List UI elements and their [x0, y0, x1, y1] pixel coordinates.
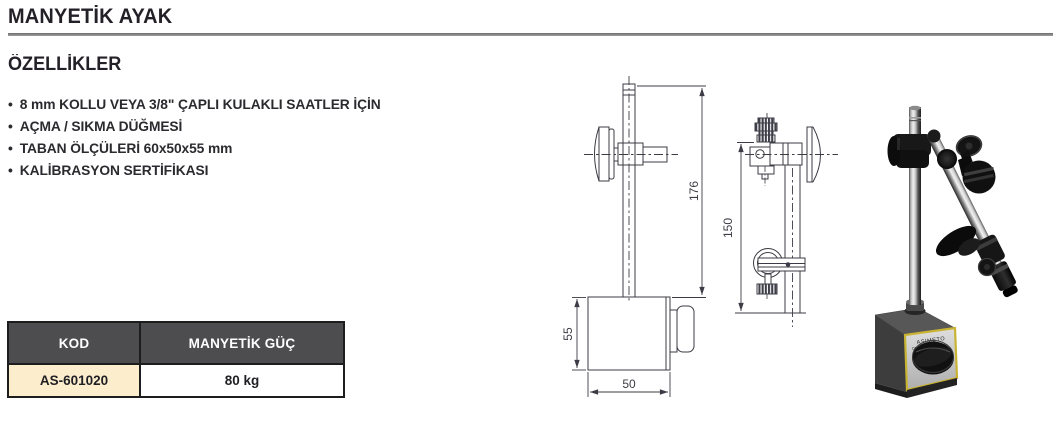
page-title: MANYETİK AYAK	[8, 5, 172, 29]
spec-table: KOD MANYETİK GÜÇ AS-601020 80 kg	[7, 321, 345, 398]
title-divider	[8, 33, 1053, 36]
arm-end-cap	[928, 130, 941, 143]
feature-item: • AÇMA / SIKMA DÜĞMESİ	[8, 116, 381, 138]
dim-label-50: 50	[622, 377, 636, 391]
catalog-page: MANYETİK AYAK ÖZELLİKLER • 8 mm KOLLU VE…	[0, 0, 1060, 430]
dim-label-150: 150	[721, 218, 735, 238]
feature-text: AÇMA / SIKMA DÜĞMESİ	[20, 116, 183, 138]
cell-magnetic-power: 80 kg	[140, 364, 344, 397]
col-header-manyetik-guc: MANYETİK GÜÇ	[140, 322, 344, 364]
cell-product-code: AS-601020	[8, 364, 140, 397]
elbow-knob	[937, 149, 957, 169]
bullet-icon: •	[8, 116, 13, 138]
front-view-drawing: 176 55 50	[561, 76, 706, 397]
photo-magnetic-base: ASIMETO ON	[875, 299, 957, 398]
feature-item: • TABAN ÖLÇÜLERİ 60x50x55 mm	[8, 138, 381, 160]
product-photo: ASIMETO ON	[860, 85, 1060, 425]
technical-drawing: 176 55 50	[555, 60, 855, 410]
feature-text: 8 mm KOLLU VEYA 3/8" ÇAPLI KULAKLI SAATL…	[20, 94, 381, 116]
feature-item: • KALİBRASYON SERTİFİKASI	[8, 160, 381, 182]
feature-text: TABAN ÖLÇÜLERİ 60x50x55 mm	[20, 138, 233, 160]
photo-column-clamp	[888, 134, 932, 168]
bullet-icon: •	[8, 138, 13, 160]
spec-table-row: AS-601020 80 kg	[8, 364, 344, 397]
col-header-kod: KOD	[8, 322, 140, 364]
side-view-drawing: 150	[721, 113, 838, 327]
dim-label-55: 55	[561, 327, 575, 341]
features-list: • 8 mm KOLLU VEYA 3/8" ÇAPLI KULAKLI SAA…	[8, 94, 381, 182]
bullet-icon: •	[8, 160, 13, 182]
features-heading: ÖZELLİKLER	[8, 54, 121, 76]
feature-item: • 8 mm KOLLU VEYA 3/8" ÇAPLI KULAKLI SAA…	[8, 94, 381, 116]
bullet-icon: •	[8, 94, 13, 116]
dim-label-176: 176	[687, 181, 701, 201]
base-onoff-knob	[912, 341, 954, 375]
spec-table-header-row: KOD MANYETİK GÜÇ	[8, 322, 344, 364]
feature-text: KALİBRASYON SERTİFİKASI	[20, 160, 209, 182]
